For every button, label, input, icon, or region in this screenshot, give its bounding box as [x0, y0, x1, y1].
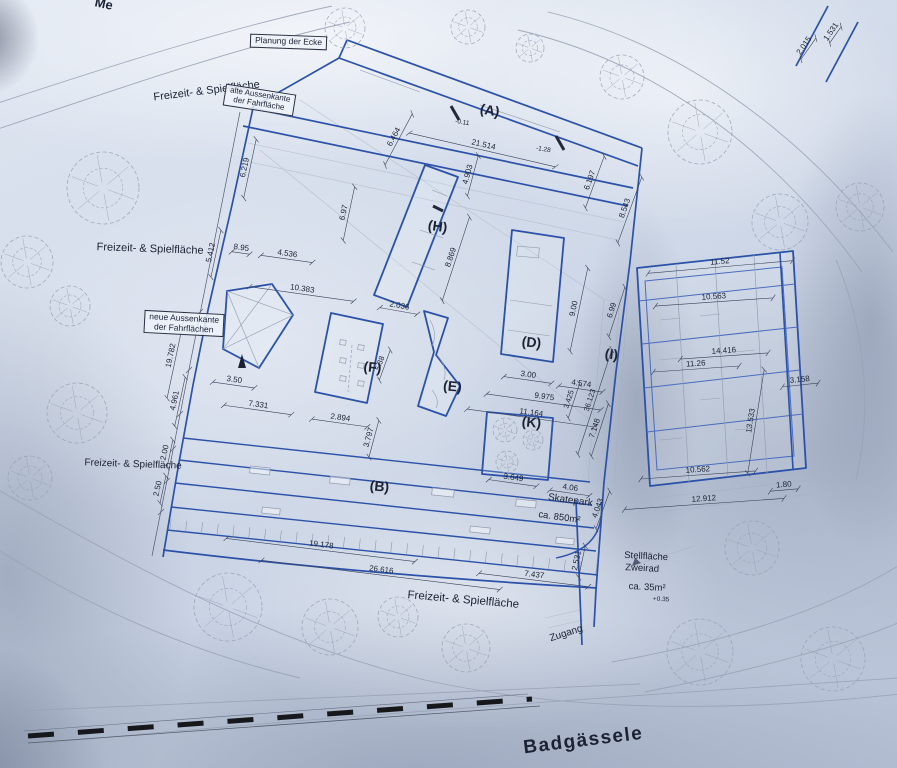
- building-e: [418, 311, 460, 416]
- skatepark-area-text: ca. 850m²: [538, 509, 581, 526]
- dim-21514-text: 21.514: [471, 137, 497, 151]
- tree-icon: [442, 624, 490, 672]
- dim-7437-text: 7.437: [524, 569, 546, 580]
- dim-12912-text: 12.912: [691, 493, 717, 504]
- tree-icon: [194, 573, 262, 641]
- skatepark-label-text: Skatepark: [547, 492, 594, 509]
- dim-350: 3.50: [210, 372, 258, 391]
- area-label-mid: Freizeit- & Spielfläche: [96, 241, 203, 257]
- tree-icon: [50, 286, 90, 326]
- dim-4536-text: 4.536: [277, 248, 299, 260]
- dim-19782-text: 19.782: [164, 342, 178, 368]
- dim-10563-text: 10.563: [701, 291, 727, 302]
- stellflaeche-line1: Stellfläche: [624, 550, 668, 563]
- dim-4574: 4.574: [556, 376, 606, 396]
- tree-icon: [668, 100, 732, 164]
- dim-10562-text: 10.562: [685, 464, 711, 475]
- dim-1152-text: 11.52: [710, 256, 731, 267]
- dim-26616: 26.616: [259, 550, 504, 593]
- tree-icon: [801, 627, 865, 691]
- tree-icon: [302, 599, 358, 655]
- tree-icon: [8, 456, 52, 500]
- stellflaeche-line1-text: Stellfläche: [624, 550, 668, 563]
- dim-900: 9.00: [560, 264, 591, 355]
- building-label-h: (H): [427, 217, 448, 236]
- dim-7148-text: 7.148: [587, 417, 602, 439]
- tree-icon: [378, 597, 418, 637]
- building-label-b: (B): [369, 477, 390, 495]
- dim-2894: 2.894: [309, 409, 371, 430]
- dim-1126-text: 11.26: [686, 358, 707, 368]
- building-label-e: (E): [442, 377, 462, 395]
- note-planung-text: Planung der Ecke: [255, 36, 322, 48]
- dim-3797: 3.797: [359, 415, 383, 460]
- building-label-a: (A): [479, 101, 501, 120]
- tree-icon: [47, 383, 107, 443]
- level-note: +0.35: [653, 596, 670, 604]
- dim-7331: 7.331: [221, 395, 295, 418]
- level-a2-text: -1.28: [535, 145, 551, 155]
- stellflaeche-line2: Zweirad: [625, 562, 659, 575]
- dim-6197: 6.197: [575, 150, 608, 211]
- street-name-bottom-text: Badgässele: [522, 723, 644, 759]
- dim-8543: 8.543: [608, 171, 646, 246]
- building-label-i-text: (I): [604, 345, 619, 362]
- skatepark-area: ca. 850m²: [538, 509, 581, 526]
- level-a1-text: -0.11: [455, 118, 471, 127]
- tree-icon: [1, 236, 53, 288]
- area-label-bottom-text: Freizeit- & Spielfläche: [407, 589, 519, 611]
- building-label-i: (I): [604, 345, 619, 362]
- railway-dashed-line: [24, 694, 540, 743]
- street-name-top: Me: [94, 0, 115, 13]
- dim-4574-text: 4.574: [571, 378, 593, 390]
- dim-19178: 19.178: [223, 528, 418, 565]
- dim-2894-text: 2.894: [330, 412, 352, 424]
- building-label-h-text: (H): [427, 217, 448, 236]
- dim-2015: 2.015: [791, 30, 819, 63]
- building-label-e-text: (E): [442, 377, 462, 395]
- building-interiors: [223, 70, 560, 408]
- tree-icon: [67, 152, 139, 224]
- zugang-label-text: Zugang: [548, 623, 584, 644]
- site-plan-drawing: MeFreizeit- & SpielflächeFreizeit- & Spi…: [0, 0, 897, 768]
- site-plan-photo: MeFreizeit- & SpielflächeFreizeit- & Spi…: [0, 0, 897, 768]
- note-neue-aussenkante: neue Aussenkante der Fahrflächen: [143, 310, 224, 337]
- dim-895: 8.95: [229, 241, 254, 257]
- dim-3158-text: 3.158: [789, 374, 810, 385]
- dim-180: 1.80: [767, 479, 801, 495]
- area-label-mid-text: Freizeit- & Spielfläche: [96, 241, 203, 257]
- building-label-d: (D): [521, 333, 542, 351]
- building-pentagon: [223, 284, 293, 368]
- dim-9975-text: 9.975: [534, 391, 556, 403]
- dim-2531-text: 2.531: [570, 549, 583, 571]
- tree-icon: [836, 183, 884, 231]
- tree-icon: [451, 10, 485, 44]
- building-f: [315, 313, 383, 403]
- dim-4961-text: 4.961: [168, 389, 181, 411]
- tree-icon: [325, 8, 365, 48]
- dim-6464: 6.464: [375, 107, 416, 169]
- dim-180-text: 1.80: [776, 479, 793, 489]
- dim-14416-text: 14.416: [711, 345, 737, 356]
- building-label-a-text: (A): [479, 101, 501, 120]
- street-name-bottom: Badgässele: [522, 723, 644, 759]
- tree-icon: [600, 55, 644, 99]
- dim-300: 3.00: [501, 366, 555, 386]
- note-neue-line2: der Fahrflächen: [149, 322, 219, 335]
- level-note-text: +0.35: [653, 596, 670, 604]
- tree-icon: [516, 34, 544, 62]
- level-a1: -0.11: [455, 118, 471, 127]
- zugang-label: Zugang: [548, 623, 584, 644]
- skatepark-label: Skatepark: [547, 492, 594, 509]
- dim-895-text: 8.95: [233, 242, 250, 253]
- dim-8869-text: 8.869: [443, 246, 458, 268]
- stellflaeche-line2-text: Zweirad: [625, 562, 659, 575]
- dim-699-text: 6.99: [605, 301, 619, 319]
- dim-5412-text: 5.412: [204, 241, 217, 263]
- dim-250: 2.50: [150, 471, 170, 506]
- dim-4536: 4.536: [258, 245, 316, 266]
- door-marks: [433, 106, 564, 211]
- tree-icon: [725, 521, 779, 575]
- dim-350-text: 3.50: [226, 374, 243, 385]
- dim-2036: 2.036: [377, 297, 422, 317]
- dim-3649-text: 3.649: [503, 472, 525, 484]
- tree-icon: [752, 194, 808, 250]
- dim-7331-text: 7.331: [248, 399, 270, 411]
- dim-300-text: 3.00: [520, 369, 537, 380]
- level-a2: -1.28: [535, 145, 551, 155]
- dim-8543-text: 8.543: [617, 197, 632, 219]
- stellflaeche-area: ca. 35m²: [628, 581, 665, 594]
- building-k: [482, 412, 553, 480]
- building-label-d-text: (D): [521, 333, 542, 351]
- area-label-bottom: Freizeit- & Spielfläche: [407, 589, 519, 611]
- dim-3797-text: 3.797: [362, 426, 376, 448]
- dim-12912: 12.912: [621, 488, 787, 512]
- building-h: [374, 165, 458, 307]
- building-label-b-text: (B): [369, 477, 390, 495]
- dim-1531: 1.531: [820, 19, 845, 47]
- note-planung-der-ecke: Planung der Ecke: [250, 34, 328, 50]
- dim-6219-text: 6.219: [238, 156, 251, 178]
- stellflaeche-area-text: ca. 35m²: [628, 581, 665, 594]
- street-name-top-text: Me: [94, 0, 115, 13]
- dim-4961: 4.961: [164, 373, 188, 430]
- dim-406-text: 4.06: [562, 482, 579, 493]
